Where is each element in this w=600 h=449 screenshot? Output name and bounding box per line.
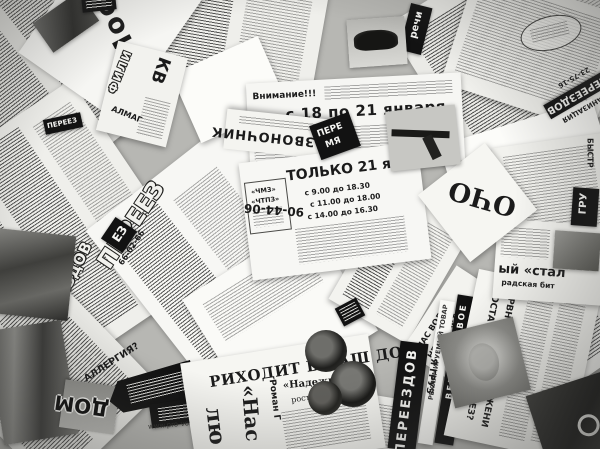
website-text: www.pro-vol — [148, 420, 191, 431]
fake-white-text — [339, 302, 361, 322]
dom-chip: ДОМ — [59, 379, 120, 434]
rechi-text: речи — [409, 10, 425, 39]
fake-text-column — [136, 97, 170, 140]
ez-text: ЕЗ — [110, 224, 129, 245]
nas-serif-text: «Нас — [239, 384, 264, 442]
gru-chip: ГРУ — [571, 187, 600, 227]
face-shadow — [465, 340, 503, 384]
gun-photo — [385, 105, 461, 172]
gru-text: ГРУ — [578, 193, 589, 215]
fake-white-text — [86, 0, 113, 9]
ring-mark — [575, 411, 600, 439]
lyu-serif-text: лю — [202, 406, 228, 446]
pereez-tab-text: ПЕРЕЕЗ — [47, 117, 78, 130]
gun-barrel — [391, 129, 449, 138]
mya-chip-text: МЯ — [324, 137, 342, 151]
car-photo — [346, 16, 407, 68]
fake-text-lines — [530, 21, 570, 44]
rings-photo — [300, 325, 385, 420]
newspaper-collage: Москва КВ ФИЛИ АЛМАГ ПЕРЕЕЗ Внимание!!! … — [0, 0, 600, 449]
car-silhouette — [353, 29, 398, 52]
kv-text: КВ — [147, 55, 172, 86]
vnimanie-text: Внимание!!! — [252, 90, 316, 102]
bystro-text: БЫСТР — [586, 138, 594, 168]
ring — [308, 381, 342, 415]
pereezdov-vertical-text: ПЕРЕЕЗДОВ — [394, 348, 420, 449]
chmz-text: «ЧМЗ» — [251, 186, 276, 195]
roman-text: Роман Г — [267, 379, 281, 421]
gun-grip — [422, 134, 442, 160]
stal-subline: радская бит — [501, 279, 555, 290]
fake-text-lines — [295, 216, 409, 265]
dom-text: ДОМ — [53, 392, 110, 419]
furniture-photo — [0, 228, 76, 321]
